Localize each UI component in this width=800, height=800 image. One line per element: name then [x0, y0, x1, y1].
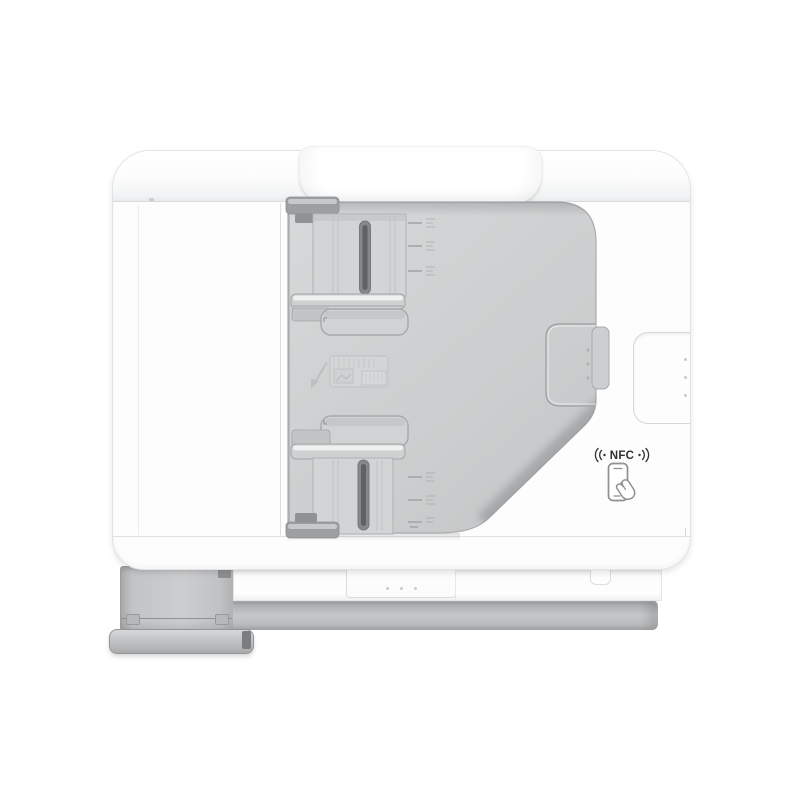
output-tray-panel: [120, 566, 235, 631]
front-band: [233, 600, 658, 630]
adf-input-tray: [270, 192, 620, 547]
grip-dot: [684, 358, 687, 361]
grip-dot: [684, 394, 687, 397]
body-grip-recess: [633, 332, 691, 424]
nfc-label: NFC: [610, 450, 635, 462]
panel-dot: [400, 587, 403, 590]
printer-product-photo: NFC: [0, 0, 800, 800]
paper-stopper-foot: [109, 629, 254, 654]
foot-end-cap: [242, 631, 251, 649]
seam-tick: [685, 528, 686, 536]
grip-dot: [684, 376, 687, 379]
panel-dot: [414, 587, 417, 590]
front-apron: [233, 567, 662, 601]
panel-dot: [386, 587, 389, 590]
nfc-badge: NFC: [594, 446, 650, 508]
front-access-panel: [346, 567, 456, 598]
nfc-badge-graphic: NFC: [594, 446, 650, 508]
hinge-knuckle: [126, 614, 140, 625]
apron-seam: [455, 567, 456, 600]
hinge-knuckle: [215, 614, 229, 625]
seam-tick: [149, 198, 154, 201]
scanner-lid-seam: [138, 205, 139, 535]
phone-tap-icon: [609, 464, 635, 501]
